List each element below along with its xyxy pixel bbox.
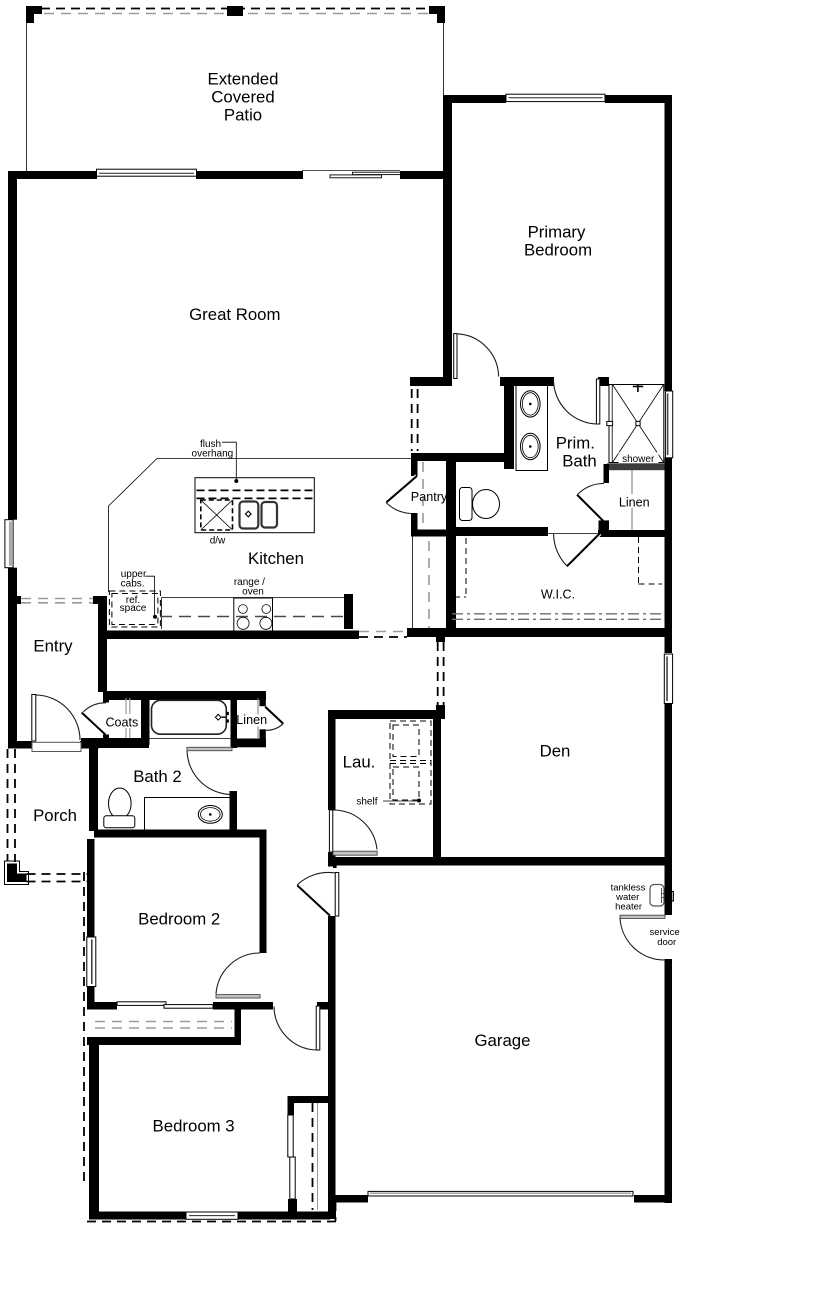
- svg-text:shower: shower: [622, 454, 655, 465]
- svg-text:Bedroom: Bedroom: [524, 241, 592, 260]
- svg-text:Garage: Garage: [475, 1031, 531, 1050]
- svg-text:Bath: Bath: [562, 451, 597, 470]
- svg-text:space: space: [120, 603, 147, 614]
- svg-text:d/w: d/w: [210, 536, 226, 547]
- svg-text:Entry: Entry: [33, 637, 73, 656]
- svg-text:overhang: overhang: [192, 449, 234, 460]
- svg-text:Pantry: Pantry: [411, 490, 448, 504]
- svg-text:cabs.: cabs.: [121, 579, 145, 590]
- svg-text:door: door: [657, 937, 676, 948]
- svg-text:oven: oven: [242, 587, 264, 598]
- svg-text:Patio: Patio: [224, 106, 262, 125]
- svg-text:Coats: Coats: [105, 716, 138, 730]
- svg-text:Den: Den: [540, 742, 571, 761]
- svg-text:Bedroom 2: Bedroom 2: [138, 910, 220, 929]
- svg-text:Linen: Linen: [236, 713, 267, 727]
- svg-text:Bedroom 3: Bedroom 3: [153, 1117, 235, 1136]
- svg-text:heater: heater: [615, 902, 642, 913]
- svg-text:Linen: Linen: [619, 496, 650, 510]
- svg-text:Great Room: Great Room: [189, 305, 280, 324]
- svg-text:Lau.: Lau.: [343, 752, 376, 771]
- svg-text:Extended: Extended: [208, 70, 279, 89]
- svg-text:Primary: Primary: [528, 223, 586, 242]
- svg-text:shelf: shelf: [356, 796, 377, 807]
- svg-text:W.I.C.: W.I.C.: [541, 588, 575, 602]
- svg-text:Covered: Covered: [211, 88, 274, 107]
- svg-text:Bath 2: Bath 2: [133, 767, 182, 786]
- svg-text:Porch: Porch: [33, 806, 77, 825]
- svg-text:Kitchen: Kitchen: [248, 549, 304, 568]
- svg-text:Prim.: Prim.: [556, 433, 595, 452]
